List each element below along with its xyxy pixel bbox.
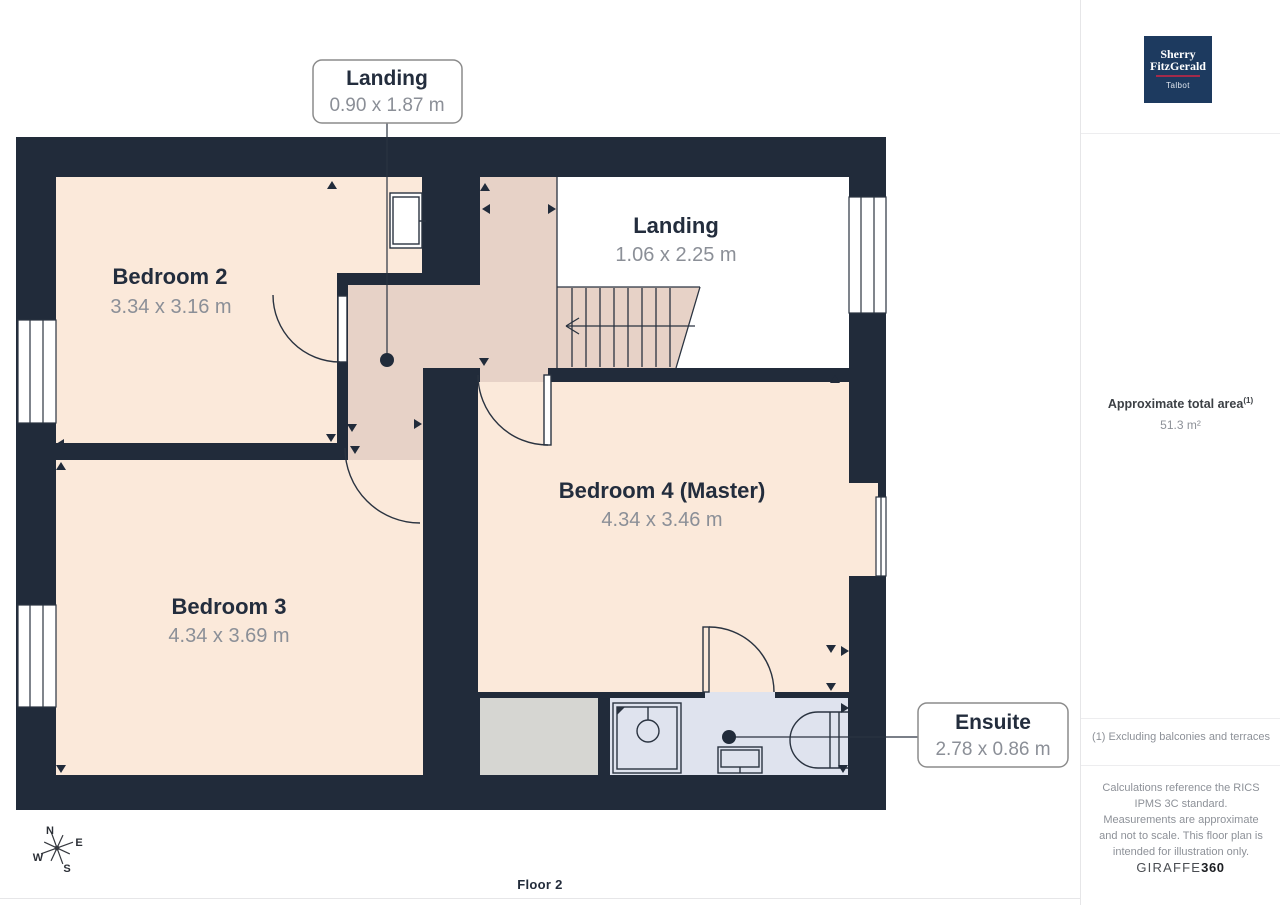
storage-area <box>480 698 598 775</box>
agency-logo: Sherry FitzGerald Talbot <box>1144 36 1212 103</box>
landing-dims: 1.06 x 2.25 m <box>615 244 736 266</box>
floor-plan-canvas: Bedroom 2 3.34 x 3.16 m Bedroom 3 4.34 x… <box>0 0 1080 905</box>
sidebar-divider-3 <box>1081 765 1280 766</box>
bedroom3-name: Bedroom 3 <box>172 594 287 619</box>
bedroom2-dims: 3.34 x 3.16 m <box>110 296 231 318</box>
disclaimer-text: Calculations reference the RICS IPMS 3C … <box>1099 781 1263 861</box>
landing-name: Landing <box>633 213 719 238</box>
compass-s: S <box>63 863 70 875</box>
brand-suffix: 360 <box>1201 860 1225 875</box>
footnote-marker: (1) <box>1243 396 1253 405</box>
sidebar-divider-1 <box>1081 133 1280 134</box>
logo-line2: FitzGerald <box>1150 60 1206 72</box>
logo-subtitle: Talbot <box>1166 81 1190 90</box>
sidebar-divider-2 <box>1081 718 1280 719</box>
callout-ensuite-label: Ensuite <box>955 711 1031 734</box>
brand-name: GIRAFFE <box>1136 860 1201 875</box>
bedroom4-name: Bedroom 4 (Master) <box>559 478 766 503</box>
area-footnote: (1) Excluding balconies and terraces <box>1091 730 1271 745</box>
callout-ensuite-dims: 2.78 x 0.86 m <box>935 739 1050 760</box>
bedroom2-name: Bedroom 2 <box>113 264 228 289</box>
window-bedroom2 <box>18 320 56 423</box>
compass-e: E <box>75 837 82 849</box>
bedroom3-dims: 4.34 x 3.69 m <box>168 625 289 647</box>
compass-w: W <box>33 852 44 864</box>
giraffe360-brand: GIRAFFE360 <box>1081 860 1280 875</box>
window-bedroom3 <box>18 605 56 707</box>
callout-landing-dims: 0.90 x 1.87 m <box>329 95 444 116</box>
window-bedroom4-bay <box>876 497 886 576</box>
floor-plan: Bedroom 2 3.34 x 3.16 m Bedroom 3 4.34 x… <box>0 0 1080 905</box>
callout-landing-label: Landing <box>346 67 428 90</box>
window-landing <box>849 197 886 313</box>
logo-accent-rule <box>1156 75 1200 77</box>
total-area-value: 51.3 m² <box>1081 418 1280 432</box>
sidebar: Sherry FitzGerald Talbot Approximate tot… <box>1080 0 1280 905</box>
total-area-block: Approximate total area(1) 51.3 m² <box>1081 396 1280 432</box>
bedroom4-dims: 4.34 x 3.46 m <box>601 509 722 531</box>
compass-n: N <box>46 825 54 837</box>
floor-label: Floor 2 <box>0 877 1080 892</box>
total-area-label: Approximate total area(1) <box>1081 396 1280 411</box>
cabinet-fixture <box>390 193 426 248</box>
compass: N E W S <box>33 825 83 875</box>
